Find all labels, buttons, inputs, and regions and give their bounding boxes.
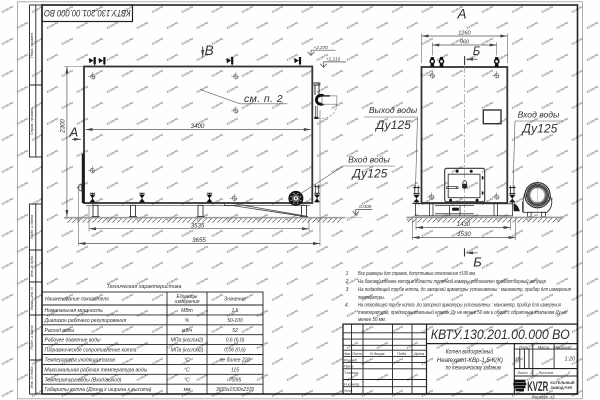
svg-text:0.000: 0.000 [359,204,371,210]
svg-text:3655х1530х2370: 3655х1530х2370 [216,387,255,393]
svg-text:Ду125: Ду125 [374,118,411,132]
svg-text:И: И [515,357,519,363]
svg-text:А: А [69,125,79,140]
svg-text:КВТУ.130.201.00.000 ВО: КВТУ.130.201.00.000 ВО [44,7,131,18]
svg-text:В: В [205,43,214,58]
svg-text:КОТЕЛЬНЫЙ: КОТЕЛЬНЫЙ [551,381,575,385]
svg-text:Инв. N подл.: Инв. N подл. [29,366,34,389]
svg-text:Лит.: Лит. [518,345,528,349]
svg-text:МПа (кгс/см2): МПа (кгс/см2) [171,348,204,354]
svg-text:3535: 3535 [191,222,205,229]
svg-text:Формат А3: Формат А3 [532,395,556,400]
svg-text:Номинальная мощность: Номинальная мощность [45,308,104,314]
svg-text:Наименование показателя: Наименование показателя [45,297,109,303]
svg-text:Подп.: Подп. [397,352,407,356]
svg-text:Техническая характеристика: Техническая характеристика [107,284,182,290]
svg-text:Значение: Значение [224,297,246,303]
svg-text:%: % [185,318,190,324]
svg-text:м3/ч: м3/ч [182,328,193,334]
svg-text:Температура воды (Вход/выход): Температура воды (Вход/выход) [45,377,122,383]
svg-text:мм: мм [184,387,191,393]
svg-text:Лист: Лист [516,370,528,375]
svg-text:N докум.: N докум. [370,352,385,356]
svg-text:На отводящей трубе котла ,до з: На отводящей трубе котла ,до запорной ар… [358,302,561,309]
svg-text:Все размеры для справок, допус: Все размеры для справок, допустимые откл… [358,271,476,277]
svg-text:Справ. примен.: Справ. примен. [29,107,34,135]
svg-text:50-100: 50-100 [227,318,243,324]
svg-text:температуры.: температуры. [358,295,385,301]
svg-text:Выход воды: Выход воды [369,105,418,115]
svg-text:Heatexpert-КВр-1,5-К(К): Heatexpert-КВр-1,5-К(К) [437,357,503,364]
svg-text:Котел водогрейный: Котел водогрейный [446,349,494,356]
svg-text:Б: Б [473,46,481,58]
svg-text:Масштаб: Масштаб [554,345,573,349]
svg-text:°С: °С [184,367,190,373]
svg-text:Рабочее давление воды: Рабочее давление воды [45,338,101,344]
svg-text:70/95: 70/95 [229,377,242,383]
svg-text:Разраб.: Разраб. [344,358,358,362]
svg-text:+2,370: +2,370 [314,45,329,50]
svg-text:4.: 4. [345,303,349,309]
svg-text:ЗАВОД РЭП: ЗАВОД РЭП [551,386,573,390]
svg-text:МПа (кгс/см2): МПа (кгс/см2) [171,338,204,344]
svg-text:Листов: Листов [537,370,553,375]
svg-text:3: 3 [346,287,349,293]
svg-text:Габариты котла (Длина х ширина: Габариты котла (Длина х ширина х высота) [45,387,152,393]
svg-text:Вход воды: Вход воды [348,155,390,165]
svg-text:1: 1 [346,271,349,277]
svg-text:Пров.: Пров. [344,365,354,369]
svg-text:+2,210: +2,210 [326,57,341,62]
svg-text:1,5: 1,5 [232,308,239,314]
svg-text:1430: 1430 [457,222,471,228]
svg-text:МВт: МВт [181,308,193,314]
svg-text:1: 1 [530,370,532,375]
svg-text:°С: °С [184,358,190,364]
svg-text:3400: 3400 [191,123,205,130]
svg-text:1:20: 1:20 [565,356,576,362]
svg-text:по техническому заданию: по техническому заданию [446,365,502,372]
svg-text:Утв.: Утв. [344,389,353,393]
svg-text:115: 115 [231,367,239,373]
svg-text:Т.контр.: Т.контр. [344,371,359,375]
svg-text:3655: 3655 [192,237,206,244]
svg-text:Н.контр.: Н.контр. [344,382,360,386]
svg-text:Диапазон рабочего регулировани: Диапазон рабочего регулирования [44,318,127,324]
svg-text:КВТУ.130.201.00.000 ВО: КВТУ.130.201.00.000 ВО [431,326,570,342]
svg-text:960: 960 [460,39,470,45]
svg-text:Температура уходящих газов: Температура уходящих газов [45,358,116,364]
svg-text:1260: 1260 [458,30,471,36]
svg-text:Максимальная рабочая температу: Максимальная рабочая температура воды [45,367,148,373]
svg-text:не более 220: не более 220 [220,358,251,364]
svg-text:менее 50 мм.: менее 50 мм. [358,317,386,323]
svg-text:0,6 (6,0): 0,6 (6,0) [226,338,245,344]
svg-text:На подводящей трубе котла, д: На подводящей трубе котла, до запорной а… [358,286,571,293]
svg-text:Лист: Лист [351,352,362,356]
svg-text:Дата: Дата [413,352,424,356]
svg-text:0,06 (0,6): 0,06 (0,6) [224,348,246,354]
svg-text:Инв. N дубл.: Инв. N дубл. [29,255,34,278]
svg-text:Гидравлическое сопротивление к: Гидравлическое сопротивление котла [45,348,137,354]
svg-text:На боковой стенке котла в обла: На боковой стенке котла в области топочн… [358,278,546,285]
svg-text:Подп. и дата: Подп. и дата [29,214,34,239]
svg-text:Перв. примен.: Перв. примен. [29,32,34,58]
svg-text:Б: Б [473,254,482,269]
svg-text:Масса: Масса [538,345,549,349]
svg-text:температуры, предохранительный: температуры, предохранительный клапан Ду… [358,309,567,316]
svg-text:А: А [457,7,467,22]
svg-text:°С: °С [184,377,190,383]
svg-text:Подп. и дата: Подп. и дата [29,324,34,349]
svg-text:Расход воды: Расход воды [45,328,75,334]
svg-text:измерения: измерения [174,299,199,305]
svg-text:Изм.: Изм. [343,352,351,356]
svg-text:см. п. 2: см. п. 2 [244,93,283,105]
svg-text:KVZR: KVZR [527,379,548,394]
svg-text:Ду125: Ду125 [520,122,557,136]
svg-text:52: 52 [232,328,238,334]
svg-text:Ду125: Ду125 [350,167,387,181]
svg-text:2: 2 [345,279,349,285]
svg-text:Вход воды: Вход воды [518,110,560,120]
svg-text:1530: 1530 [457,232,471,238]
svg-text:2300: 2300 [60,119,67,134]
svg-text:Взам. инв. N: Взам. инв. N [29,287,34,310]
